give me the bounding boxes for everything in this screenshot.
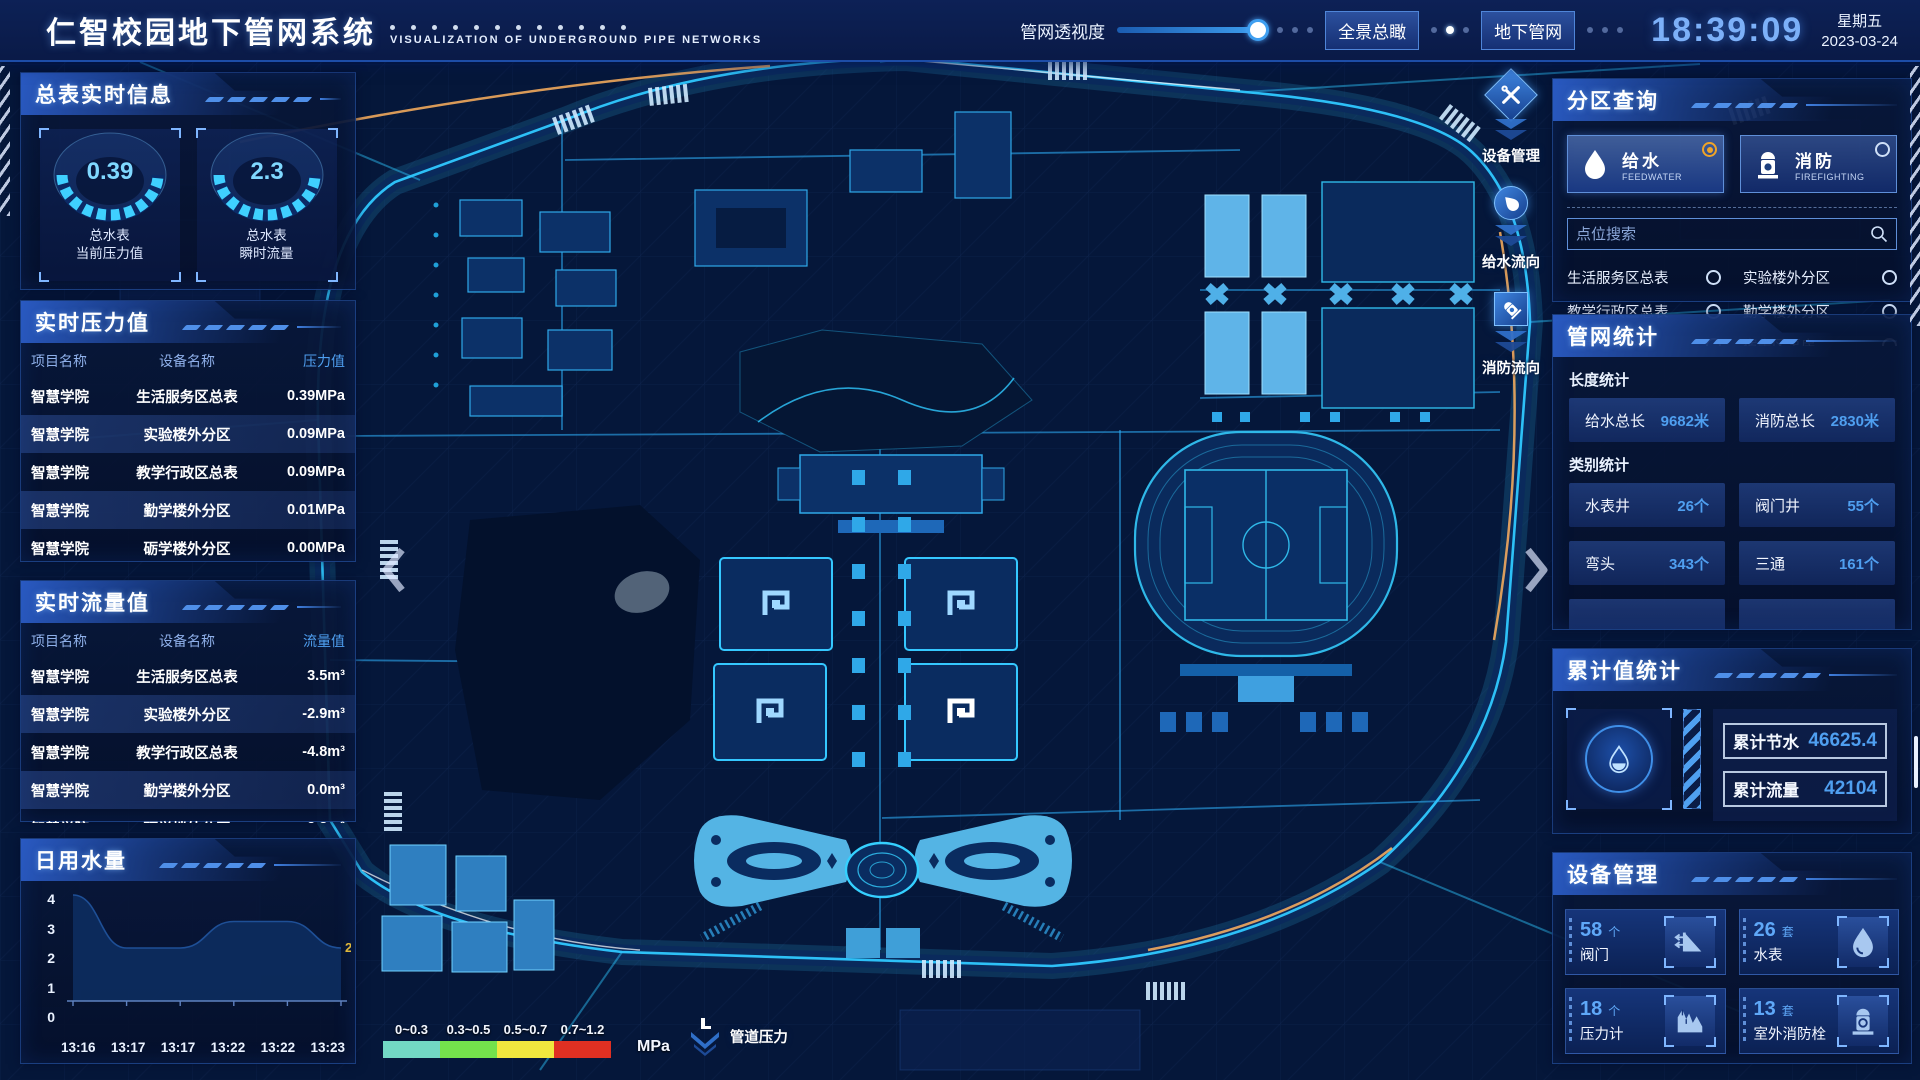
weekday: 星期五 bbox=[1837, 10, 1882, 31]
legend-segment: 0~0.3 bbox=[383, 1022, 440, 1058]
section-title: 实时流量值 bbox=[35, 587, 150, 617]
table-row: 智慧学院教学行政区总表-4.8m³ bbox=[21, 733, 355, 771]
chart-x-axis: 13:1613:1713:17 13:2213:2213:23 bbox=[61, 1040, 345, 1055]
legend-segment: 0.5~0.7 bbox=[497, 1022, 554, 1058]
gauge-label: 瞬时流量 bbox=[240, 245, 294, 263]
legend-segment: 0.7~1.2 bbox=[554, 1022, 611, 1058]
edge-decoration bbox=[0, 66, 10, 216]
overview-button[interactable]: 全景总瞰 bbox=[1325, 11, 1419, 50]
panel-flow: 实时流量值 项目名称设备名称流量值 智慧学院生活服务区总表3.5m³ 智慧学院实… bbox=[20, 580, 356, 822]
pan-left-arrow[interactable] bbox=[380, 546, 406, 594]
title-dots bbox=[390, 25, 762, 30]
cumulative-flow: 累计流量42104 bbox=[1723, 771, 1887, 807]
stat-box: 水表井26个 bbox=[1569, 483, 1725, 527]
legend-segment: 0.3~0.5 bbox=[440, 1022, 497, 1058]
water-emblem bbox=[1567, 709, 1671, 809]
section-title: 总表实时信息 bbox=[35, 79, 173, 109]
water-drop-icon bbox=[1497, 189, 1525, 217]
table-row: 智慧学院实验楼外分区-2.9m³ bbox=[21, 695, 355, 733]
zone-item[interactable]: 实验楼外分区 bbox=[1743, 260, 1897, 294]
tool-water-flow[interactable]: 给水流向 bbox=[1482, 180, 1540, 272]
pressure-gauge-icon bbox=[1673, 1004, 1707, 1038]
app-subtitle: VISUALIZATION OF UNDERGROUND PIPE NETWOR… bbox=[390, 34, 762, 46]
stat-box: 阀门井55个 bbox=[1739, 483, 1895, 527]
legend-unit: MPa bbox=[637, 1038, 670, 1056]
section-title: 分区查询 bbox=[1567, 85, 1659, 115]
svg-text:0.39: 0.39 bbox=[86, 158, 133, 185]
underground-button[interactable]: 地下管网 bbox=[1481, 11, 1575, 50]
svg-text:2.3: 2.3 bbox=[250, 158, 283, 185]
scrollbar-thumb[interactable] bbox=[1914, 736, 1918, 788]
tab-firefighting[interactable]: 消防FIREFIGHTING bbox=[1740, 135, 1897, 193]
date: 2023-03-24 bbox=[1821, 33, 1898, 50]
tab-feedwater[interactable]: 给水FEEDWATER bbox=[1567, 135, 1724, 193]
panel-pipe-stats: 管网统计 长度统计 给水总长9682米 消防总长2830米 类别统计 水表井26… bbox=[1552, 314, 1912, 630]
tool-device-management[interactable]: 设备管理 bbox=[1482, 70, 1540, 166]
section-title: 设备管理 bbox=[1567, 859, 1659, 889]
pan-right-arrow[interactable] bbox=[1524, 546, 1550, 594]
table-row: 智慧学院勤学楼外分区0.0m³ bbox=[21, 771, 355, 809]
stat-box: 给水总长9682米 bbox=[1569, 398, 1725, 442]
table-row: 智慧学院实验楼外分区0.09MPa bbox=[21, 415, 355, 453]
hydrant-icon bbox=[1751, 147, 1785, 181]
gauge-label: 总水表 bbox=[240, 227, 294, 245]
clock: 18:39:09 bbox=[1651, 11, 1803, 50]
device-card-valve[interactable]: 58个 阀门 bbox=[1565, 909, 1726, 975]
stat-box-clipped bbox=[1569, 599, 1725, 630]
gauge-label: 当前压力值 bbox=[76, 245, 144, 263]
svg-text:2: 2 bbox=[345, 940, 351, 955]
water-drop-icon bbox=[1846, 925, 1880, 959]
gauge-flow: 2.3 总水表 瞬时流量 bbox=[197, 129, 337, 281]
table-row: 智慧学院砺学楼外分区0.00MPa bbox=[21, 529, 355, 563]
legend-label: 管道压力 bbox=[730, 1026, 788, 1047]
panel-daily-water: 日用水量 43 21 0 2 13:1613:1713:17 13:2213:2… bbox=[20, 838, 356, 1064]
gauge-dial: 0.39 bbox=[48, 129, 172, 225]
gauge-pressure: 0.39 总水表 当前压力值 bbox=[40, 129, 180, 281]
table-header: 项目名称设备名称流量值 bbox=[21, 623, 355, 657]
water-drop-icon bbox=[1578, 147, 1612, 181]
opacity-slider[interactable] bbox=[1117, 27, 1265, 33]
radio-selected[interactable] bbox=[1702, 142, 1717, 157]
radio-unselected[interactable] bbox=[1875, 142, 1890, 157]
panel-zone-query: 分区查询 给水FEEDWATER 消防FIREFIGHTING 生活服务区总表 … bbox=[1552, 78, 1912, 302]
zone-item[interactable]: 生活服务区总表 bbox=[1567, 260, 1721, 294]
section-title: 累计值统计 bbox=[1567, 655, 1682, 685]
stat-box: 三通161个 bbox=[1739, 541, 1895, 585]
gauge-dial: 2.3 bbox=[205, 129, 329, 225]
tool-fire-flow[interactable]: 消防流向 bbox=[1482, 286, 1540, 378]
dots-separator bbox=[1277, 27, 1313, 33]
device-card-hydrant[interactable]: 13套 室外消防栓 bbox=[1739, 988, 1900, 1054]
panel-meter-info: 总表实时信息 0.39 总水表 当前压力值 2.3 总水表 瞬时流 bbox=[20, 72, 356, 290]
length-stats-label: 长度统计 bbox=[1569, 369, 1895, 390]
radio-icon[interactable] bbox=[1706, 270, 1721, 285]
header-bar: 仁智校园地下管网系统 VISUALIZATION OF UNDERGROUND … bbox=[0, 0, 1920, 62]
chart-y-axis: 43 21 0 bbox=[35, 891, 55, 1025]
stat-box: 消防总长2830米 bbox=[1739, 398, 1895, 442]
panel-pressure: 实时压力值 项目名称设备名称压力值 智慧学院生活服务区总表0.39MPa 智慧学… bbox=[20, 300, 356, 562]
device-card-pressure-gauge[interactable]: 18个 压力计 bbox=[1565, 988, 1726, 1054]
radio-icon[interactable] bbox=[1882, 270, 1897, 285]
table-row: 智慧学院生活服务区总表3.5m³ bbox=[21, 657, 355, 695]
search-box[interactable] bbox=[1567, 218, 1897, 250]
dots-separator bbox=[1587, 27, 1623, 33]
tools-icon bbox=[1500, 84, 1522, 106]
daily-water-chart: 43 21 0 2 13:1613:1713:17 13:2213:2213:2… bbox=[29, 885, 347, 1057]
gauge-label: 总水表 bbox=[76, 227, 144, 245]
search-icon[interactable] bbox=[1870, 225, 1888, 243]
table-row: 智慧学院勤学楼外分区0.01MPa bbox=[21, 491, 355, 529]
category-stats-label: 类别统计 bbox=[1569, 454, 1895, 475]
edge-decoration bbox=[1910, 66, 1920, 326]
pressure-legend: 0~0.3 0.3~0.5 0.5~0.7 0.7~1.2 MPa 管道压力 bbox=[383, 1014, 788, 1058]
opacity-slider-label: 管网透视度 bbox=[1020, 18, 1105, 43]
hydrant-icon bbox=[1846, 1004, 1880, 1038]
section-title: 管网统计 bbox=[1567, 321, 1659, 351]
section-title: 实时压力值 bbox=[35, 307, 150, 337]
device-card-water-meter[interactable]: 26套 水表 bbox=[1739, 909, 1900, 975]
stat-box-clipped bbox=[1739, 599, 1895, 630]
section-title: 日用水量 bbox=[35, 845, 127, 875]
stripe-decoration bbox=[1683, 709, 1701, 809]
stat-box: 弯头343个 bbox=[1569, 541, 1725, 585]
valve-icon bbox=[1673, 925, 1707, 959]
table-row: 智慧学院生活服务区总表0.39MPa bbox=[21, 377, 355, 415]
panel-cumulative: 累计值统计 累计节水46625.4 累计流量42104 bbox=[1552, 648, 1912, 834]
table-row: 智慧学院砺学楼外分区2.3m³ bbox=[21, 809, 355, 823]
cumulative-saving: 累计节水46625.4 bbox=[1723, 723, 1887, 759]
panel-devices: 设备管理 58个 阀门 26套 水表 18个 压力计 bbox=[1552, 852, 1912, 1064]
pressure-indicator-icon bbox=[688, 1014, 722, 1058]
dots-separator bbox=[1431, 26, 1469, 34]
table-row: 智慧学院教学行政区总表0.09MPa bbox=[21, 453, 355, 491]
area-chart: 2 bbox=[59, 885, 351, 1025]
app-title: 仁智校园地下管网系统 bbox=[46, 8, 376, 52]
slider-knob[interactable] bbox=[1247, 19, 1269, 41]
water-drop-icon bbox=[1604, 744, 1634, 774]
hydrant-icon bbox=[1495, 293, 1526, 324]
search-input[interactable] bbox=[1576, 226, 1870, 243]
table-header: 项目名称设备名称压力值 bbox=[21, 343, 355, 377]
